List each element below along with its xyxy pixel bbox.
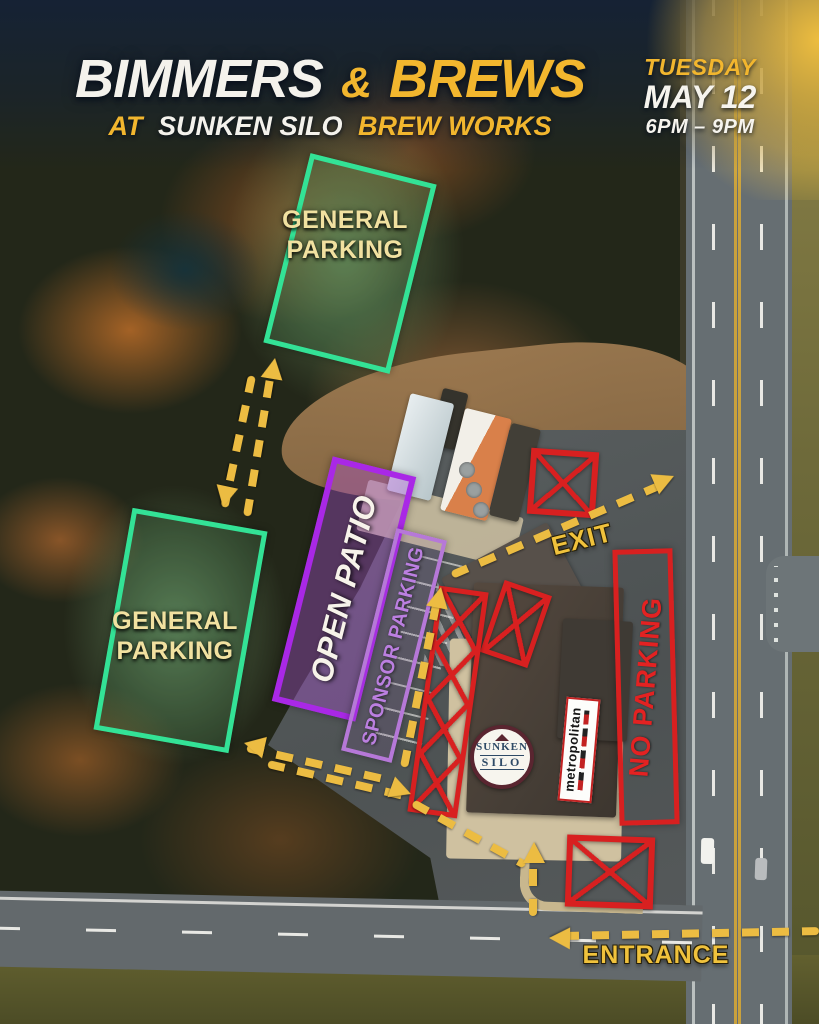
road-markings [774, 566, 778, 642]
arrowhead-up-icon [261, 356, 286, 380]
car-on-road [701, 838, 714, 864]
tank-circle [466, 482, 482, 498]
arrowhead-down-icon [212, 484, 238, 509]
title-word-bimmers: BIMMERS [75, 49, 323, 109]
side-road-stub [766, 556, 819, 652]
silo-logo-line1: SUNKEN [474, 741, 530, 753]
page-subtitle: AT SUNKEN SILO BREW WORKS [60, 111, 600, 142]
general-parking-north-label: GENERAL PARKING [275, 205, 415, 265]
barn-roof-icon [495, 734, 509, 741]
no-parking-label: NO PARKING [623, 596, 668, 778]
sunken-silo-logo: SUNKEN SILO [470, 725, 534, 789]
no-parking-xbox-north [527, 448, 599, 519]
tank-circle [473, 502, 489, 518]
silo-logo-line2: SILO [480, 755, 525, 770]
arrowhead-up-icon [426, 585, 452, 610]
event-date: MAY 12 [616, 81, 784, 113]
page-title: BIMMERS & BREWS [60, 48, 600, 110]
title-word-brews: BREWS [389, 49, 585, 109]
general-parking-west-label: GENERAL PARKING [105, 606, 245, 666]
arrowhead-up-icon [523, 842, 545, 863]
event-day: TUESDAY [616, 54, 784, 81]
event-time: 6PM – 9PM [616, 116, 784, 139]
tank-circle [459, 462, 475, 478]
event-map-flyer: BIMMERS & BREWS AT SUNKEN SILO BREW WORK… [0, 0, 819, 1024]
title-ampersand: & [341, 59, 371, 107]
no-parking-xbox-south [565, 834, 655, 909]
subtitle-suffix: BREW WORKS [358, 111, 551, 141]
entrance-label: ENTRANCE [576, 941, 736, 970]
arrowhead-left-icon [549, 927, 570, 949]
no-parking-zone: NO PARKING [612, 548, 679, 825]
subtitle-venue: SUNKEN SILO [158, 111, 343, 141]
event-datetime-block: TUESDAY MAY 12 6PM – 9PM [616, 54, 784, 139]
car-on-road [755, 858, 768, 880]
subtitle-prefix: AT [108, 111, 142, 141]
